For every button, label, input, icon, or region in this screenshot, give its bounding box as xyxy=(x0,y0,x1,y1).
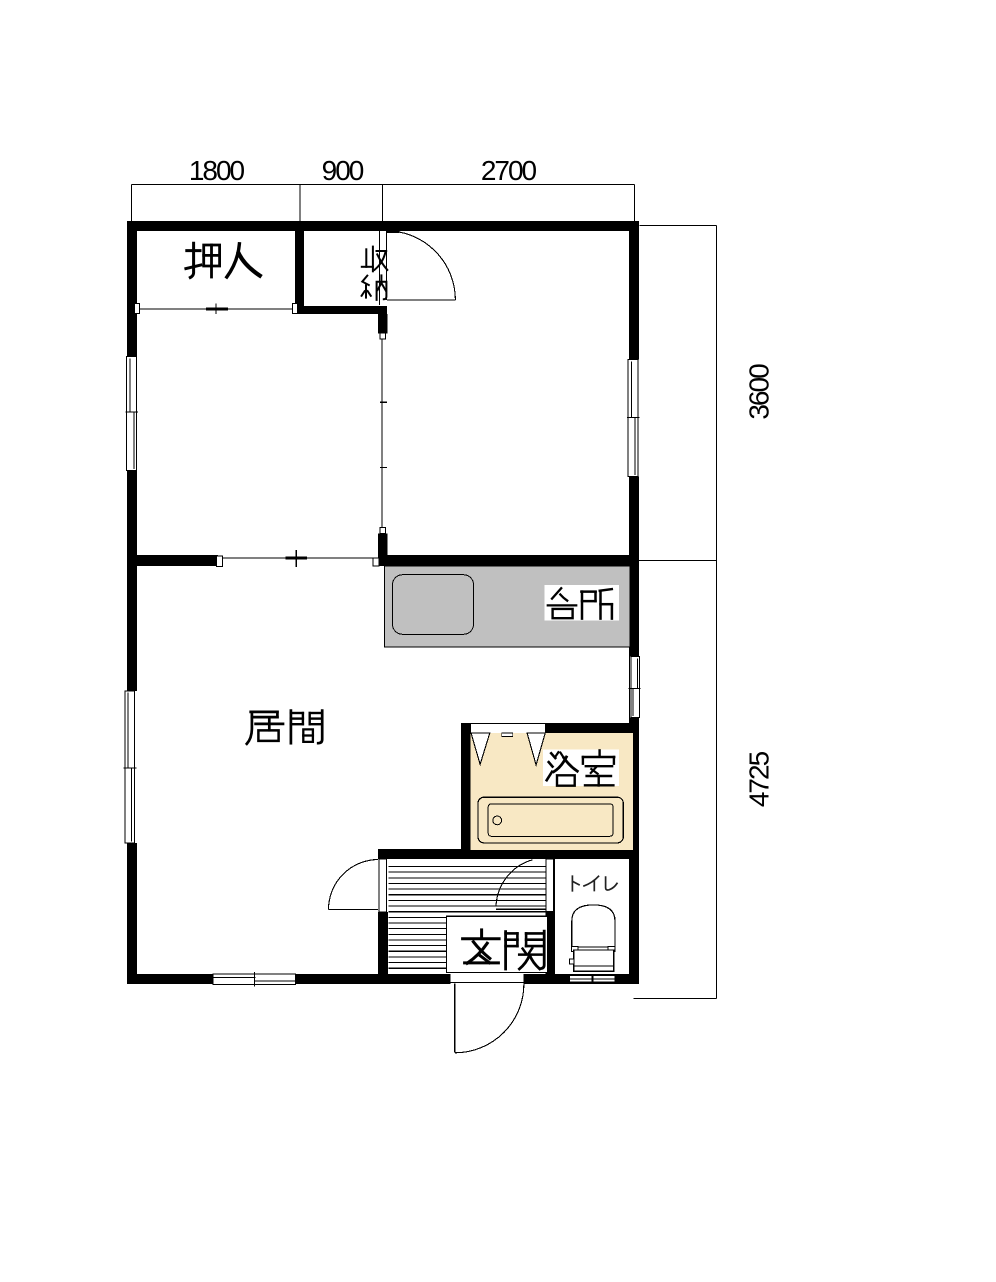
svg-text:1800: 1800 xyxy=(189,155,245,186)
svg-text:4725: 4725 xyxy=(744,751,775,807)
svg-text:3600: 3600 xyxy=(744,364,775,420)
svg-text:2700: 2700 xyxy=(481,155,537,186)
svg-text:900: 900 xyxy=(322,155,364,186)
